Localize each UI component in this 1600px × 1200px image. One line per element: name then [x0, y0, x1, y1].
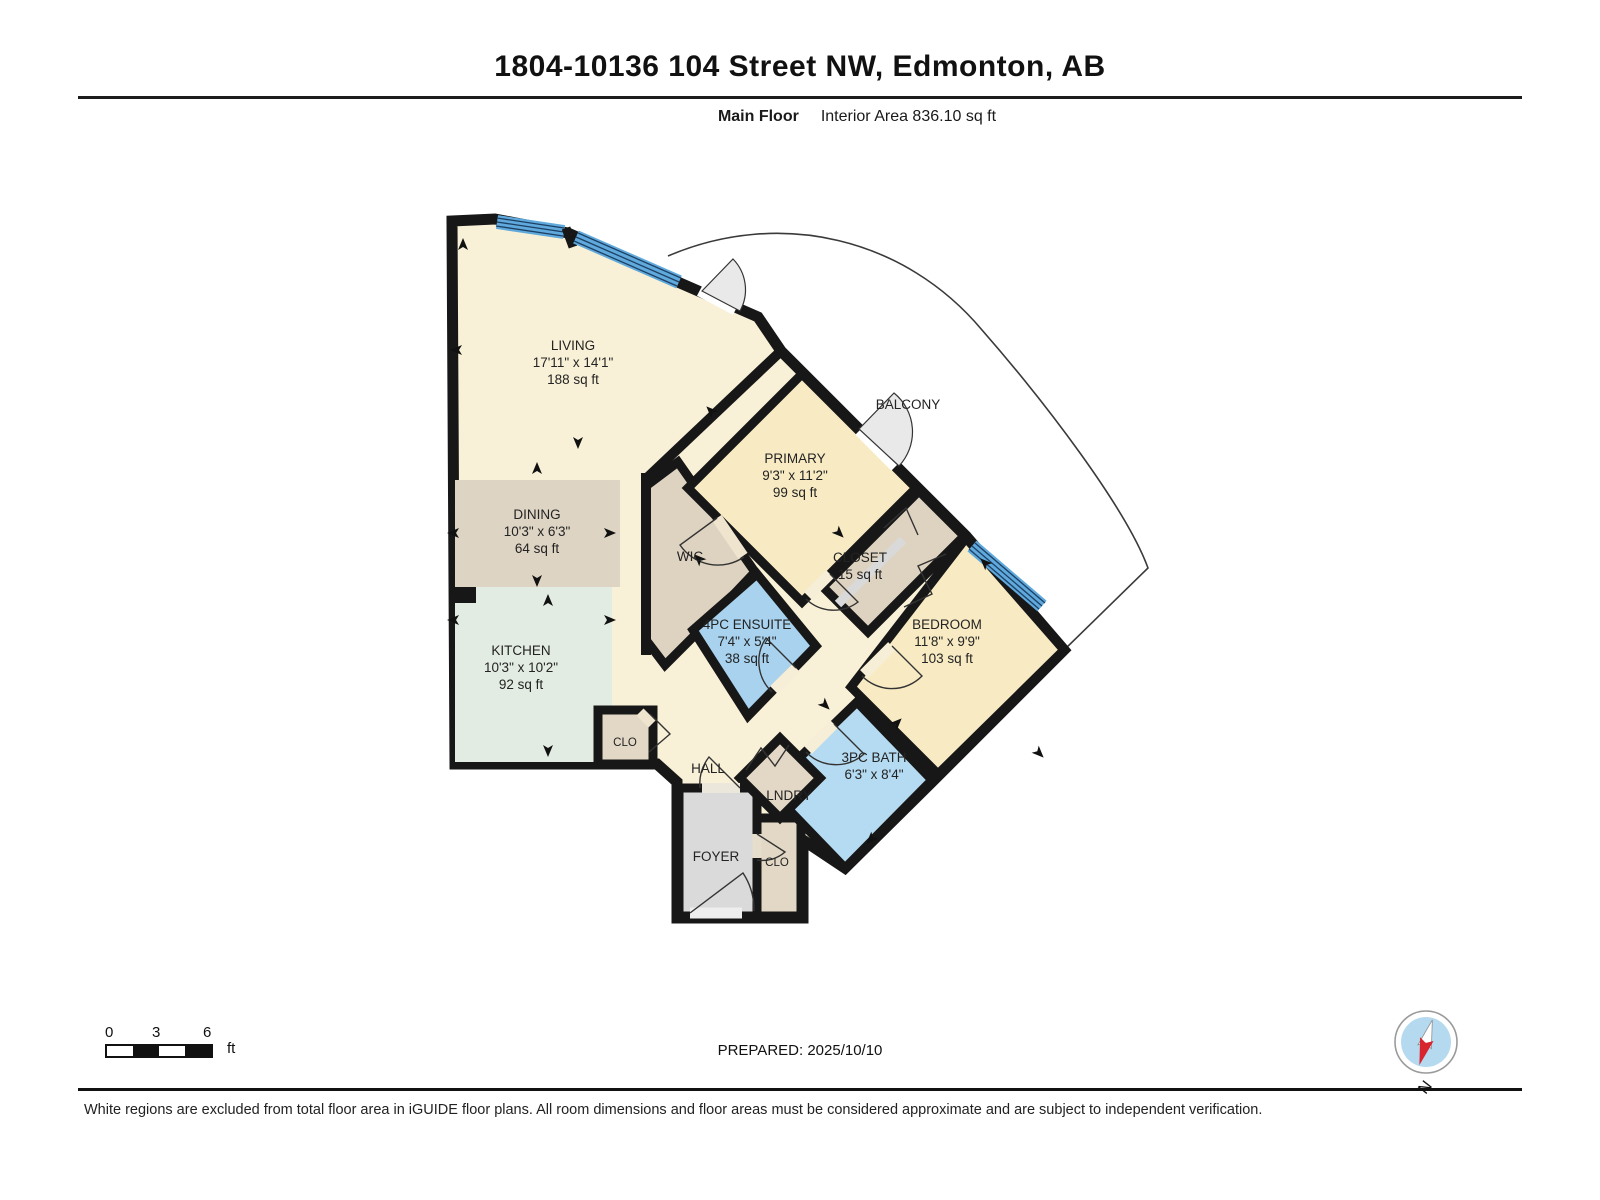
- living-dims: 17'11" x 14'1": [533, 355, 614, 370]
- balcony-label: BALCONY: [876, 397, 941, 412]
- bedroom-dims: 11'8" x 9'9": [914, 634, 980, 649]
- living-label: LIVING: [551, 338, 595, 353]
- kitchen-area: 92 sq ft: [499, 677, 544, 692]
- closet-foyer-label: CLO: [765, 857, 789, 869]
- disclaimer-text: White regions are excluded from total fl…: [84, 1102, 1484, 1118]
- primary-label: PRIMARY: [764, 451, 825, 466]
- scale-tick-0: 0: [105, 1024, 113, 1041]
- living-area: 188 sq ft: [547, 372, 599, 387]
- kitchen-label: KITCHEN: [491, 643, 550, 658]
- floorplan-page: 1804-10136 104 Street NW, Edmonton, AB M…: [0, 0, 1600, 1200]
- scale-tick-6: 6: [203, 1024, 211, 1041]
- floorplan-canvas: LIVING 17'11" x 14'1" 188 sq ft DINING 1…: [0, 0, 1600, 1200]
- ensuite-dims: 7'4" x 5'4": [717, 634, 776, 649]
- scale-numbers: 0 3 6: [105, 1024, 275, 1042]
- primary-area: 99 sq ft: [773, 485, 818, 500]
- closet-area: 15 sq ft: [838, 567, 883, 582]
- compass-icon: N: [1392, 1006, 1462, 1106]
- dining-dims: 10'3" x 6'3": [504, 524, 571, 539]
- closet-label: CLOSET: [833, 550, 887, 565]
- hall-label: HALL: [691, 761, 725, 776]
- scale-tick-3: 3: [152, 1024, 160, 1041]
- dining-label: DINING: [513, 507, 560, 522]
- closet-kitchen-label: CLO: [613, 737, 637, 749]
- bedroom-label: BEDROOM: [912, 617, 982, 632]
- wic-label: WIC: [677, 549, 703, 564]
- kitchen-dims: 10'3" x 10'2": [484, 660, 558, 675]
- bath-label: 3PC BATH: [841, 750, 906, 765]
- ensuite-area: 38 sq ft: [725, 651, 770, 666]
- compass: N: [1392, 1006, 1462, 1106]
- laundry-label: LNDRY: [766, 788, 812, 803]
- floorplan-svg: LIVING 17'11" x 14'1" 188 sq ft DINING 1…: [0, 0, 1600, 1200]
- footer-divider: [78, 1088, 1522, 1091]
- bath-dims: 6'3" x 8'4": [844, 767, 903, 782]
- ensuite-label: 4PC ENSUITE: [703, 617, 792, 632]
- bedroom-area: 103 sq ft: [921, 651, 973, 666]
- dining-area: 64 sq ft: [515, 541, 560, 556]
- prepared-date: PREPARED: 2025/10/10: [0, 1042, 1600, 1059]
- primary-dims: 9'3" x 11'2": [762, 468, 828, 483]
- foyer-label: FOYER: [693, 849, 740, 864]
- wall-stub-kitchen: [449, 587, 476, 603]
